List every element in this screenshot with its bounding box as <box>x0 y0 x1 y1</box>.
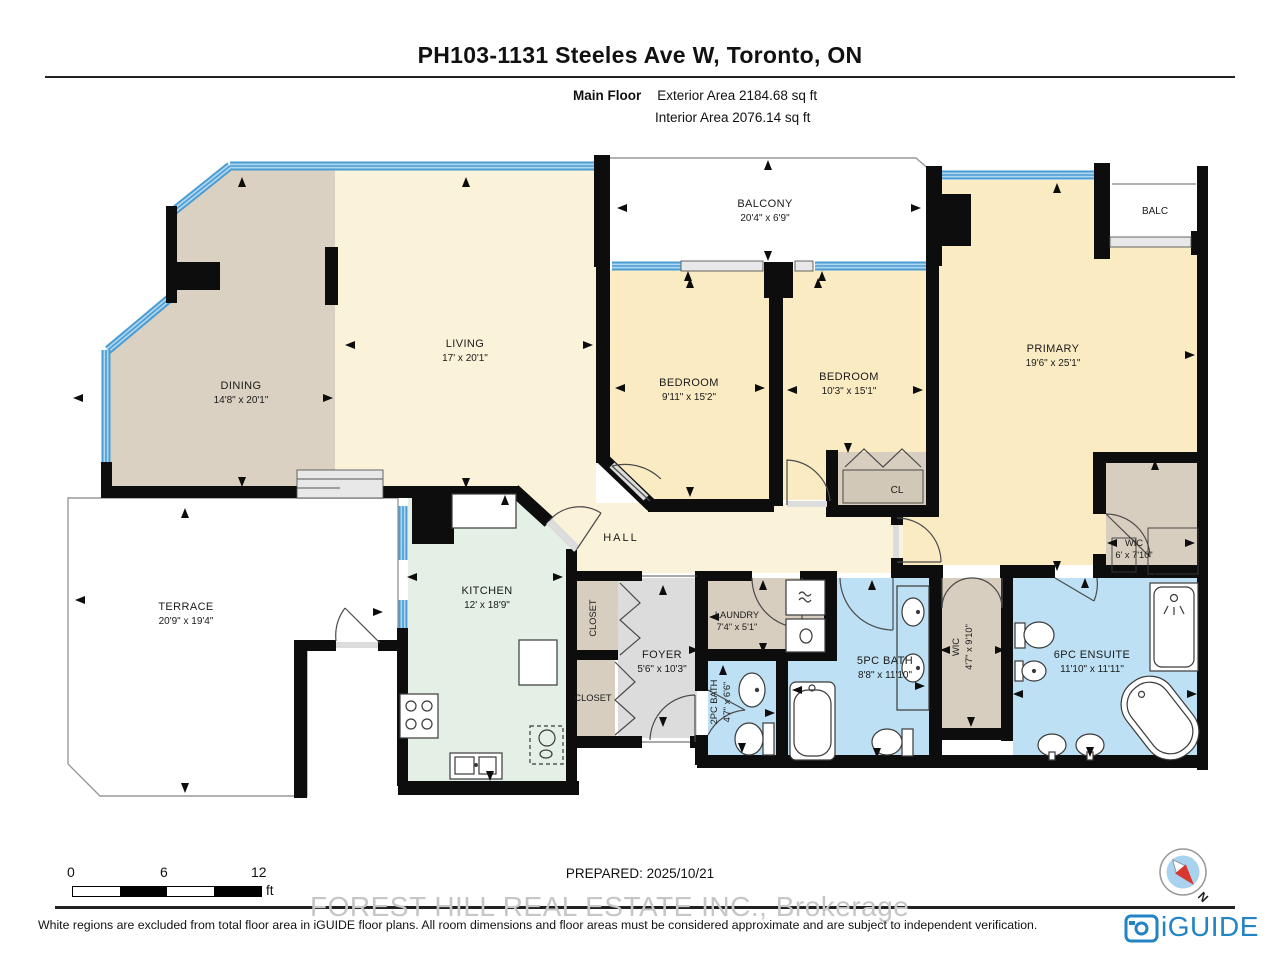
cooktop-icon <box>400 694 438 738</box>
scale-bar <box>72 886 262 897</box>
kitchen-dims: 12' x 18'9" <box>464 600 510 611</box>
cl-label: CL <box>891 485 904 496</box>
primary-label: PRIMARY <box>1027 343 1080 355</box>
ensuite-label: 6PC ENSUITE <box>1054 649 1131 661</box>
toilet-icon <box>735 723 774 755</box>
foyer-label: FOYER <box>642 649 682 661</box>
bedroom2-label: BEDROOM <box>819 371 879 383</box>
wic-corridor-dims: 4'7" x 9'10" <box>964 624 974 670</box>
living-dims: 17' x 20'1" <box>442 353 488 364</box>
scale-tick-12: 12 <box>251 864 267 880</box>
laundry-dims: 7'4" x 5'1" <box>717 622 758 632</box>
kitchen-counter <box>519 640 557 685</box>
bedroom2-dims: 10'3" x 15'1" <box>822 386 877 397</box>
closet-lower-label: CLOSET <box>574 693 612 703</box>
compass-north-label: N <box>1195 889 1211 905</box>
floorplan-drawing: BALCONY 20'4" x 6'9" BALC LIVING 17' x 2… <box>0 0 1280 975</box>
living-area <box>335 166 596 498</box>
laundry-label: LAUNDRY <box>715 610 759 620</box>
bidet-icon <box>1015 661 1046 681</box>
toilet-icon <box>1015 622 1054 648</box>
terrace-dims: 20'9" x 19'4" <box>159 616 214 627</box>
sink-icon <box>739 673 765 707</box>
hall-label: HALL <box>603 532 639 544</box>
ensuite-dims: 11'10" x 11'11" <box>1060 664 1124 675</box>
cl-shelf <box>843 470 923 503</box>
room-fills <box>68 158 1198 796</box>
wic-primary-label: WIC <box>1125 538 1143 548</box>
floorplan-page: PH103-1131 Steeles Ave W, Toronto, ON Ma… <box>0 0 1280 975</box>
dining-dims: 14'8" x 20'1" <box>214 395 269 406</box>
scale-tick-0: 0 <box>67 864 75 880</box>
foyer-dims: 5'6" x 10'3" <box>637 664 687 675</box>
kitchen-label: KITCHEN <box>461 585 512 597</box>
shower-icon <box>1150 583 1198 671</box>
kitchen-sink-icon <box>450 753 502 779</box>
compass-icon: N <box>1150 842 1230 910</box>
bath-2pc-dims: 4'7" x 6'6" <box>722 682 732 723</box>
dining-label: DINING <box>221 380 262 392</box>
wic-primary-dims: 6' x 7'10" <box>1115 550 1152 560</box>
living-label: LIVING <box>446 338 484 350</box>
prepared-date: PREPARED: 2025/10/21 <box>0 866 1280 881</box>
wic-corridor-label: WIC <box>951 638 961 656</box>
balcony-dims: 20'4" x 6'9" <box>740 213 790 224</box>
scale-unit: ft <box>266 883 274 898</box>
terrace-label: TERRACE <box>158 601 213 613</box>
closet-upper-label: CLOSET <box>588 599 598 637</box>
balc-label: BALC <box>1142 206 1168 217</box>
bedroom1-dims: 9'11" x 15'2" <box>662 392 717 403</box>
bath-5pc-label: 5PC BATH <box>857 655 913 667</box>
bath-5pc-dims: 8'8" x 11'10" <box>858 670 913 681</box>
iguide-logo-text: iGUIDE <box>1161 911 1259 943</box>
disclaimer-text: White regions are excluded from total fl… <box>38 918 1037 932</box>
balcony-label: BALCONY <box>737 198 793 210</box>
iguide-camera-icon <box>1124 912 1160 944</box>
dining-area <box>104 168 335 498</box>
bedroom1-label: BEDROOM <box>659 377 719 389</box>
scale-tick-6: 6 <box>160 864 168 880</box>
bath-2pc-label: 2PC BATH <box>709 680 719 725</box>
primary-dims: 19'6" x 25'1" <box>1026 358 1081 369</box>
bathtub-icon <box>790 682 835 760</box>
